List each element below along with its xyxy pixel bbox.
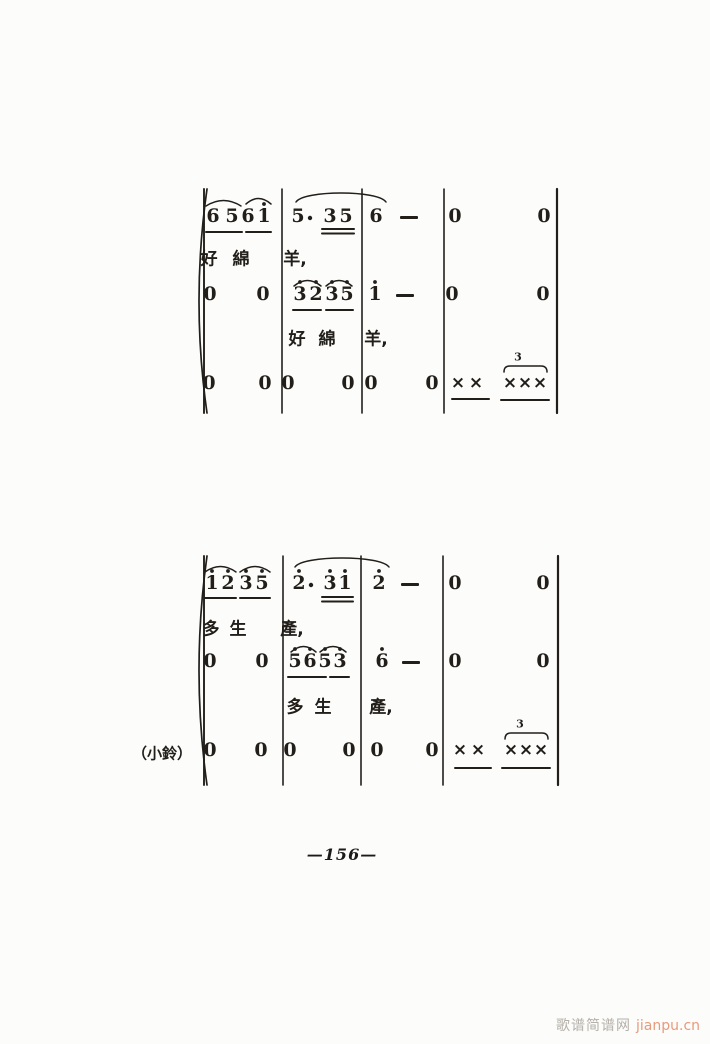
rest-zero: 0 <box>254 739 267 761</box>
rest-zero: 0 <box>536 650 549 672</box>
note-digit: 3 <box>239 572 252 594</box>
watermark: 歌谱简谱网jianpu.cn <box>556 1015 700 1035</box>
rest-zero: 0 <box>258 372 271 394</box>
note-digit: 1 <box>205 572 218 594</box>
rest-zero: 0 <box>425 739 438 761</box>
rest-zero: 0 <box>342 739 355 761</box>
percussion-note: × <box>518 373 532 393</box>
percussion-note: × <box>533 373 547 393</box>
tuplet-number: 3 <box>514 351 522 364</box>
rest-zero: 0 <box>448 205 461 227</box>
note-digit: 2 <box>292 572 305 594</box>
lyric-syllable: 多 <box>203 615 220 640</box>
lyric-syllable: 多 <box>287 693 304 718</box>
rest-zero: 0 <box>203 739 216 761</box>
note-digit: 1 <box>257 205 270 227</box>
rest-zero: 0 <box>370 739 383 761</box>
rest-zero: 0 <box>203 283 216 305</box>
duration-dash <box>402 661 420 664</box>
rest-zero: 0 <box>537 205 550 227</box>
percussion-note: × <box>453 740 467 760</box>
duration-dash <box>401 583 419 586</box>
percussion-note: × <box>469 373 483 393</box>
lyric-syllable: 羊, <box>364 325 387 350</box>
percussion-note: × <box>534 740 548 760</box>
rest-zero: 0 <box>364 372 377 394</box>
note-digit: 3 <box>323 205 336 227</box>
note-digit: 3 <box>293 283 306 305</box>
note-digit: 1 <box>338 572 351 594</box>
watermark-site-name: 歌谱简谱网 <box>556 1018 631 1034</box>
rest-zero: 0 <box>536 572 549 594</box>
percussion-note: × <box>471 740 485 760</box>
note-digit: 2 <box>309 283 322 305</box>
note-digit: 5 <box>340 283 353 305</box>
percussion-note: × <box>504 740 518 760</box>
note-digit: 3 <box>333 650 346 672</box>
lyric-syllable: 綿 <box>233 245 250 270</box>
rest-zero: 0 <box>202 372 215 394</box>
watermark-site-url: jianpu.cn <box>636 1018 700 1034</box>
note-digit: 2 <box>372 572 385 594</box>
tuplet-number: 3 <box>516 718 524 731</box>
rest-zero: 0 <box>341 372 354 394</box>
lyric-syllable: 好 <box>201 245 218 270</box>
score-text-layer: 6561535600003235100000000×××××好綿羊,好綿羊,3（… <box>0 0 710 1044</box>
duration-dash <box>396 294 414 297</box>
note-digit: 5 <box>318 650 331 672</box>
note-digit: 2 <box>221 572 234 594</box>
note-digit: 6 <box>369 205 382 227</box>
rest-zero: 0 <box>448 572 461 594</box>
note-digit: 5 <box>225 205 238 227</box>
note-digit: 5 <box>339 205 352 227</box>
note-digit: 6 <box>375 650 388 672</box>
note-digit: 3 <box>325 283 338 305</box>
note-digit: 5 <box>291 205 304 227</box>
rest-zero: 0 <box>283 739 296 761</box>
rest-zero: 0 <box>536 283 549 305</box>
rest-zero: 0 <box>425 372 438 394</box>
music-score-page: 6561535600003235100000000×××××好綿羊,好綿羊,3（… <box>0 0 710 1044</box>
note-digit: 6 <box>303 650 316 672</box>
note-digit: 5 <box>255 572 268 594</box>
note-digit: 6 <box>206 205 219 227</box>
page-number: —156— <box>300 845 384 864</box>
duration-dash <box>400 216 418 219</box>
lyric-syllable: 好 <box>289 325 306 350</box>
lyric-syllable: 生 <box>230 615 247 640</box>
percussion-note: × <box>503 373 517 393</box>
rest-zero: 0 <box>203 650 216 672</box>
rest-zero: 0 <box>445 283 458 305</box>
note-digit: 6 <box>241 205 254 227</box>
lyric-syllable: 產, <box>280 615 303 640</box>
lyric-syllable: 生 <box>315 693 332 718</box>
lyric-syllable: 羊, <box>283 245 306 270</box>
rest-zero: 0 <box>255 650 268 672</box>
instrument-label: （小鈴） <box>132 743 192 764</box>
percussion-note: × <box>451 373 465 393</box>
note-digit: 1 <box>368 283 381 305</box>
percussion-note: × <box>519 740 533 760</box>
lyric-syllable: 綿 <box>319 325 336 350</box>
rest-zero: 0 <box>256 283 269 305</box>
lyric-syllable: 產, <box>369 693 392 718</box>
note-digit: 3 <box>323 572 336 594</box>
note-digit: 5 <box>288 650 301 672</box>
rest-zero: 0 <box>448 650 461 672</box>
rest-zero: 0 <box>281 372 294 394</box>
